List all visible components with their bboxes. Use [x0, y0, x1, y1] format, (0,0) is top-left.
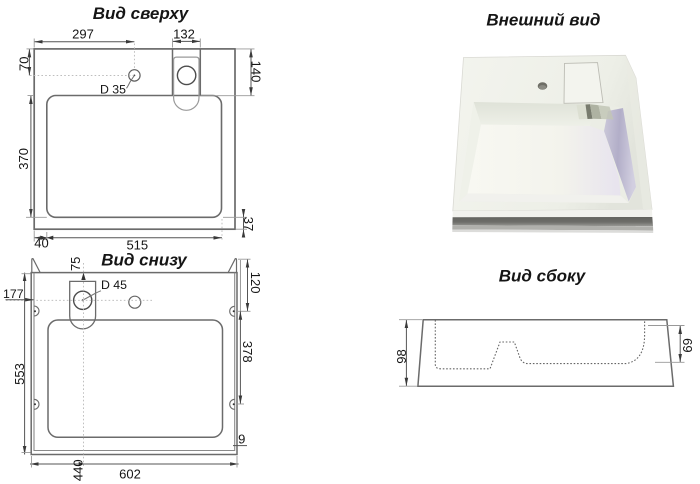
svg-text:Вид сверху: Вид сверху	[93, 4, 190, 23]
svg-text:Вид сбоку: Вид сбоку	[499, 267, 587, 286]
svg-text:297: 297	[72, 27, 94, 42]
svg-text:120: 120	[248, 272, 263, 294]
svg-text:D 35: D 35	[100, 83, 126, 97]
svg-text:75: 75	[68, 257, 83, 271]
svg-text:98: 98	[394, 349, 409, 363]
svg-text:Внешний вид: Внешний вид	[486, 10, 600, 29]
svg-text:D 45: D 45	[101, 278, 127, 292]
svg-text:378: 378	[240, 341, 255, 363]
svg-text:40: 40	[34, 236, 48, 251]
svg-text:132: 132	[173, 27, 195, 42]
svg-text:602: 602	[119, 467, 141, 482]
svg-text:140: 140	[249, 61, 264, 83]
svg-text:9: 9	[238, 432, 245, 447]
svg-text:553: 553	[12, 363, 27, 385]
svg-text:69: 69	[680, 338, 695, 352]
svg-text:370: 370	[16, 148, 31, 170]
svg-text:37: 37	[241, 217, 256, 231]
svg-text:177: 177	[3, 287, 24, 301]
svg-text:Вид снизу: Вид снизу	[101, 251, 188, 270]
svg-text:440: 440	[70, 459, 85, 481]
svg-text:70: 70	[17, 57, 32, 71]
